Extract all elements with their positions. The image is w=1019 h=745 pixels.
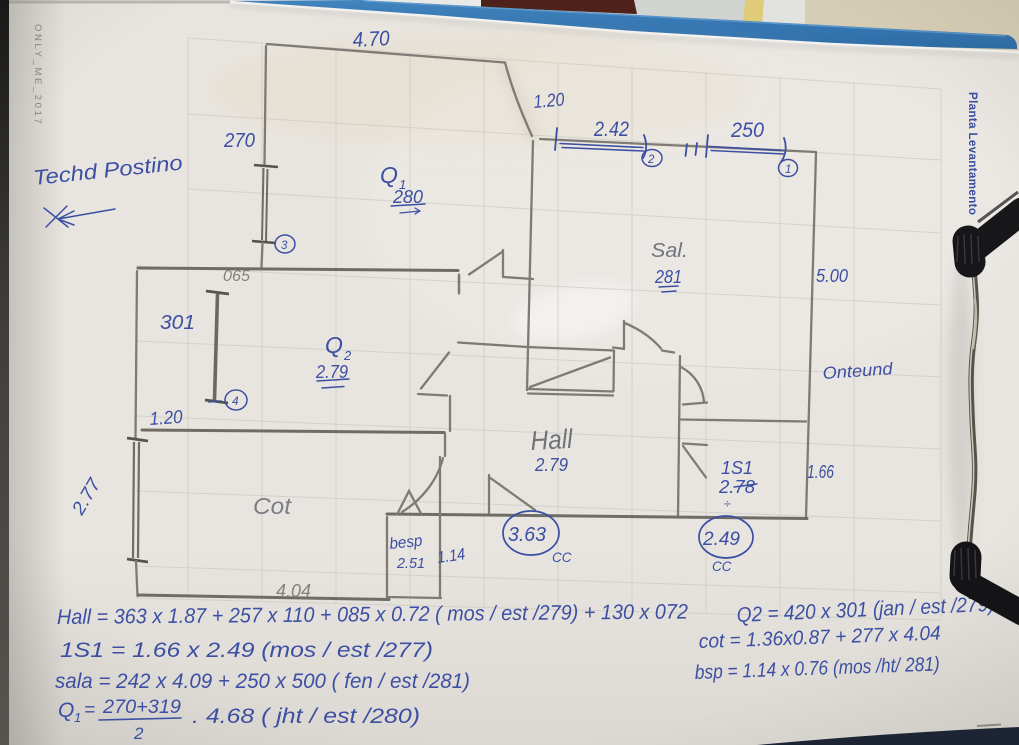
svg-text:=: =: [84, 700, 95, 721]
svg-text:2: 2: [133, 724, 144, 743]
svg-text:ONLY_ME_2017: ONLY_ME_2017: [32, 24, 43, 126]
svg-text:1.66: 1.66: [807, 462, 835, 482]
svg-text:Q: Q: [325, 332, 343, 358]
svg-text:Q: Q: [380, 162, 398, 188]
svg-text:065: 065: [223, 268, 250, 285]
svg-text:3.63: 3.63: [508, 524, 546, 546]
svg-text:2.51: 2.51: [396, 555, 425, 572]
svg-text:301: 301: [160, 312, 195, 334]
svg-text:281: 281: [654, 266, 682, 287]
svg-text:4.70: 4.70: [352, 27, 390, 52]
svg-text:besp: besp: [389, 533, 424, 553]
svg-text:5.00: 5.00: [816, 265, 849, 286]
svg-text:4: 4: [232, 394, 239, 408]
svg-text:2: 2: [647, 154, 655, 166]
svg-text:2.79: 2.79: [534, 454, 568, 475]
svg-text:1.20: 1.20: [149, 406, 184, 429]
svg-text:270: 270: [223, 130, 255, 152]
svg-text:270+319: 270+319: [102, 697, 181, 718]
svg-text:. 4.68 ( jht / est /280): . 4.68 ( jht / est /280): [192, 705, 420, 728]
svg-text:CC: CC: [712, 559, 732, 574]
svg-text:Q: Q: [58, 699, 74, 722]
svg-text:250: 250: [730, 119, 764, 142]
svg-text:2.42: 2.42: [593, 118, 629, 141]
svg-text:÷: ÷: [724, 497, 731, 511]
svg-text:1S1: 1S1: [721, 457, 753, 478]
svg-text:Sal.: Sal.: [651, 240, 688, 262]
svg-text:1S1 = 1.66 x 2.49 (mos / est /: 1S1 = 1.66 x 2.49 (mos / est /277): [60, 639, 433, 662]
svg-text:Planta Levantamento: Planta Levantamento: [966, 92, 978, 215]
svg-text:1: 1: [74, 710, 81, 725]
svg-text:Cot: Cot: [253, 493, 293, 519]
svg-text:3: 3: [281, 240, 288, 252]
svg-text:Hall: Hall: [530, 424, 574, 456]
svg-text:CC: CC: [552, 550, 572, 565]
svg-text:sala = 242 x 4.09 + 250 x 500: sala = 242 x 4.09 + 250 x 500 ( fen / es…: [55, 670, 470, 693]
svg-text:4.04: 4.04: [276, 581, 311, 601]
svg-text:1.20: 1.20: [533, 88, 566, 112]
svg-text:2.49: 2.49: [702, 529, 740, 550]
svg-text:1: 1: [785, 164, 791, 176]
